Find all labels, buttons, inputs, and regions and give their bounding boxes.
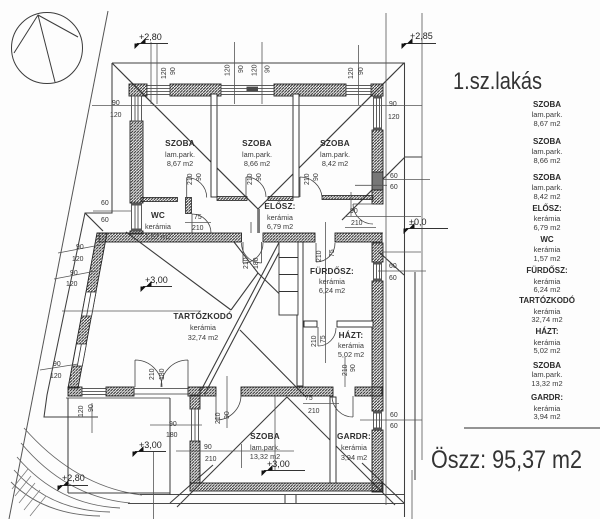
svg-text:75: 75 bbox=[320, 335, 327, 343]
svg-text:SZOBA: SZOBA bbox=[533, 173, 561, 182]
svg-text:60: 60 bbox=[390, 173, 398, 180]
svg-text:ELŐSZ:: ELŐSZ: bbox=[532, 204, 561, 213]
svg-text:lam.park.: lam.park. bbox=[532, 183, 563, 192]
svg-text:180: 180 bbox=[159, 368, 166, 380]
svg-text:SZOBA: SZOBA bbox=[242, 139, 272, 148]
svg-text:TARTÓZKODÓ: TARTÓZKODÓ bbox=[173, 310, 233, 321]
svg-text:180: 180 bbox=[253, 257, 260, 269]
svg-text:90: 90 bbox=[196, 173, 203, 181]
svg-text:5,02 m2: 5,02 m2 bbox=[533, 346, 560, 355]
svg-text:SZOBA: SZOBA bbox=[533, 361, 561, 370]
svg-text:90: 90 bbox=[76, 244, 84, 251]
svg-text:TARTÓZKODÓ: TARTÓZKODÓ bbox=[519, 296, 575, 305]
svg-text:32,74 m2: 32,74 m2 bbox=[531, 315, 562, 324]
svg-text:120: 120 bbox=[388, 114, 400, 121]
svg-text:90: 90 bbox=[350, 208, 358, 215]
svg-text:kerámia: kerámia bbox=[338, 341, 365, 350]
svg-text:210: 210 bbox=[247, 173, 254, 185]
svg-text:8,66 m2: 8,66 m2 bbox=[533, 156, 560, 165]
svg-text:120: 120 bbox=[161, 67, 168, 79]
svg-text:kerámia: kerámia bbox=[319, 277, 346, 286]
svg-text:60: 60 bbox=[101, 217, 109, 224]
svg-text:6,79 m2: 6,79 m2 bbox=[267, 222, 293, 231]
svg-text:90: 90 bbox=[53, 361, 61, 368]
svg-text:210: 210 bbox=[308, 408, 320, 415]
svg-text:210: 210 bbox=[149, 368, 156, 380]
svg-text:120: 120 bbox=[66, 281, 78, 288]
svg-text:lam.park.: lam.park. bbox=[532, 110, 563, 119]
svg-text:kerámia: kerámia bbox=[267, 213, 294, 222]
svg-text:180: 180 bbox=[166, 432, 178, 439]
svg-text:8,42 m2: 8,42 m2 bbox=[322, 159, 348, 168]
svg-text:60: 60 bbox=[390, 423, 398, 430]
svg-text:90: 90 bbox=[350, 364, 357, 372]
svg-text:5,02 m2: 5,02 m2 bbox=[338, 350, 364, 359]
svg-text:60: 60 bbox=[390, 412, 398, 419]
svg-text:210: 210 bbox=[311, 335, 318, 347]
svg-text:120: 120 bbox=[348, 67, 355, 79]
svg-text:3,94 m2: 3,94 m2 bbox=[341, 453, 367, 462]
svg-text:3,94 m2: 3,94 m2 bbox=[533, 412, 560, 421]
svg-text:kerámia: kerámia bbox=[534, 214, 562, 223]
svg-text:SZOBA: SZOBA bbox=[533, 100, 561, 109]
svg-text:ELŐSZ:: ELŐSZ: bbox=[264, 200, 295, 211]
svg-text:75: 75 bbox=[329, 249, 336, 257]
svg-text:kerámia: kerámia bbox=[341, 443, 368, 452]
svg-text:60: 60 bbox=[389, 275, 397, 282]
svg-text:8,67 m2: 8,67 m2 bbox=[167, 159, 193, 168]
svg-text:90: 90 bbox=[204, 444, 212, 451]
svg-text:SZOBA: SZOBA bbox=[320, 139, 350, 148]
svg-text:1,57 m2: 1,57 m2 bbox=[145, 232, 171, 241]
svg-text:±0,0: ±0,0 bbox=[409, 217, 426, 227]
svg-text:210: 210 bbox=[192, 225, 204, 232]
svg-text:210: 210 bbox=[205, 456, 217, 463]
svg-text:kerámia: kerámia bbox=[190, 323, 217, 332]
svg-text:kerámia: kerámia bbox=[534, 245, 562, 254]
svg-text:90: 90 bbox=[70, 270, 78, 277]
svg-text:90: 90 bbox=[88, 404, 95, 412]
svg-text:HÁZT:: HÁZT: bbox=[339, 330, 364, 340]
svg-text:8,66 m2: 8,66 m2 bbox=[244, 159, 270, 168]
svg-text:120: 120 bbox=[78, 405, 85, 417]
svg-text:13,32 m2: 13,32 m2 bbox=[531, 379, 562, 388]
svg-text:210: 210 bbox=[215, 412, 222, 424]
svg-text:75: 75 bbox=[305, 395, 313, 402]
svg-text:FÜRDŐSZ:: FÜRDŐSZ: bbox=[526, 266, 567, 275]
svg-text:120: 120 bbox=[110, 112, 122, 119]
svg-text:90: 90 bbox=[265, 65, 272, 73]
svg-text:Öszz: 95,37 m2: Öszz: 95,37 m2 bbox=[431, 446, 582, 474]
svg-text:+3,00: +3,00 bbox=[145, 275, 168, 285]
svg-text:WC: WC bbox=[151, 211, 165, 220]
svg-text:SZOBA: SZOBA bbox=[250, 432, 280, 441]
svg-text:lam.park.: lam.park. bbox=[242, 150, 272, 159]
svg-text:SZOBA: SZOBA bbox=[165, 139, 195, 148]
svg-text:lam.park.: lam.park. bbox=[532, 147, 563, 156]
svg-text:HÁZT:: HÁZT: bbox=[535, 327, 558, 336]
svg-text:210: 210 bbox=[304, 173, 311, 185]
svg-text:210: 210 bbox=[243, 257, 250, 269]
svg-text:60: 60 bbox=[101, 200, 109, 207]
svg-text:120: 120 bbox=[252, 64, 259, 76]
svg-text:8,67 m2: 8,67 m2 bbox=[533, 119, 560, 128]
svg-text:1,57 m2: 1,57 m2 bbox=[533, 254, 560, 263]
svg-text:kerámia: kerámia bbox=[145, 222, 172, 231]
svg-text:210: 210 bbox=[187, 173, 194, 185]
svg-text:6,24 m2: 6,24 m2 bbox=[533, 285, 560, 294]
svg-text:90: 90 bbox=[169, 421, 177, 428]
svg-text:8,42 m2: 8,42 m2 bbox=[533, 192, 560, 201]
svg-text:lam.park.: lam.park. bbox=[320, 150, 350, 159]
svg-text:90: 90 bbox=[238, 65, 245, 73]
svg-text:90: 90 bbox=[358, 67, 365, 75]
svg-text:120: 120 bbox=[225, 64, 232, 76]
svg-text:GARDR:: GARDR: bbox=[531, 393, 563, 402]
svg-text:210: 210 bbox=[351, 220, 363, 227]
svg-text:+2,85: +2,85 bbox=[410, 31, 433, 41]
svg-text:90: 90 bbox=[170, 67, 177, 75]
svg-text:lam.park.: lam.park. bbox=[532, 370, 563, 379]
svg-text:60: 60 bbox=[390, 184, 398, 191]
svg-text:lam.park.: lam.park. bbox=[165, 150, 195, 159]
svg-text:75: 75 bbox=[194, 214, 202, 221]
svg-text:lam.park.: lam.park. bbox=[250, 443, 280, 452]
svg-text:6,24 m2: 6,24 m2 bbox=[319, 286, 345, 295]
svg-text:60: 60 bbox=[389, 263, 397, 270]
svg-text:210: 210 bbox=[342, 364, 349, 376]
svg-text:32,74 m2: 32,74 m2 bbox=[188, 333, 218, 342]
svg-text:90: 90 bbox=[112, 100, 120, 107]
svg-text:SZOBA: SZOBA bbox=[533, 137, 561, 146]
svg-text:WC: WC bbox=[540, 235, 554, 244]
svg-text:90: 90 bbox=[224, 411, 231, 419]
svg-text:+2,80: +2,80 bbox=[139, 32, 162, 42]
svg-text:1.sz.lakás: 1.sz.lakás bbox=[453, 68, 542, 95]
svg-text:90: 90 bbox=[389, 101, 397, 108]
svg-text:90: 90 bbox=[313, 173, 320, 181]
svg-text:6,79 m2: 6,79 m2 bbox=[533, 223, 560, 232]
svg-text:120: 120 bbox=[72, 256, 84, 263]
svg-text:+2,80: +2,80 bbox=[62, 473, 85, 483]
svg-text:210: 210 bbox=[316, 250, 323, 262]
svg-text:120: 120 bbox=[50, 373, 62, 380]
svg-text:90: 90 bbox=[256, 173, 263, 181]
svg-text:GARDR:: GARDR: bbox=[337, 432, 371, 441]
svg-text:FÜRDŐSZ:: FÜRDŐSZ: bbox=[310, 265, 354, 276]
svg-text:13,32 m2: 13,32 m2 bbox=[250, 452, 280, 461]
